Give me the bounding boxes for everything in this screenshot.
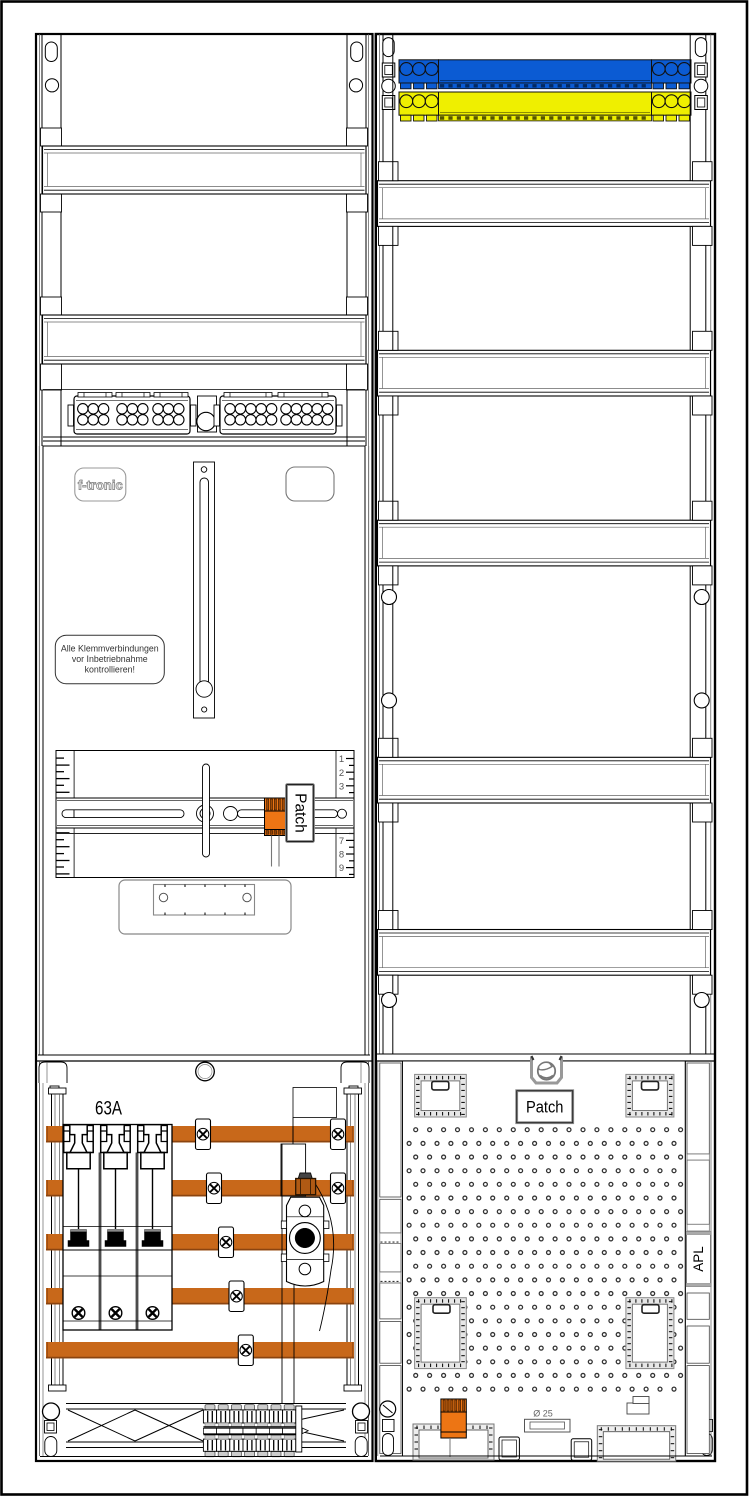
svg-text:3: 3 (339, 782, 344, 793)
svg-text:Ø 25: Ø 25 (533, 1409, 553, 1419)
svg-text:7: 7 (339, 836, 344, 847)
svg-text:Patch: Patch (292, 793, 309, 833)
svg-text:kontrollieren!: kontrollieren! (85, 665, 135, 675)
svg-text:63A: 63A (95, 1098, 122, 1120)
svg-text:f-tronic: f-tronic (78, 478, 123, 493)
svg-text:8: 8 (339, 850, 344, 861)
svg-text:9: 9 (339, 863, 344, 874)
svg-text:vor Inbetriebnahme: vor Inbetriebnahme (72, 654, 148, 664)
svg-text:Patch: Patch (526, 1099, 564, 1117)
svg-text:2: 2 (339, 768, 344, 779)
svg-text:1: 1 (339, 754, 344, 765)
svg-text:Alle Klemmverbindungen: Alle Klemmverbindungen (61, 644, 159, 654)
svg-text:APL: APL (691, 1246, 706, 1272)
